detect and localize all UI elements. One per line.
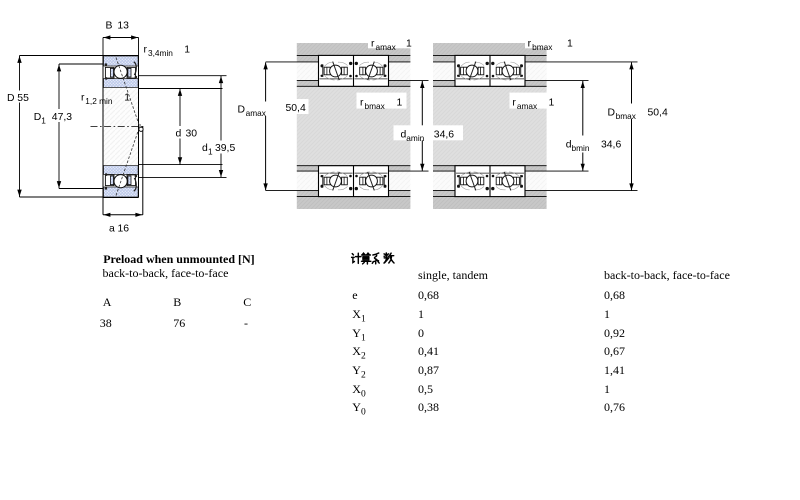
svg-text:1: 1 [567, 38, 573, 49]
svg-text:50,4: 50,4 [648, 108, 668, 119]
svg-text:amax: amax [376, 42, 397, 52]
svg-text:55: 55 [17, 93, 29, 104]
svg-text:1: 1 [124, 93, 130, 104]
svg-text:D: D [238, 104, 246, 115]
svg-text:47,3: 47,3 [52, 112, 72, 123]
svg-text:D: D [7, 93, 15, 104]
svg-text:34,6: 34,6 [601, 139, 621, 150]
svg-text:1: 1 [208, 146, 213, 156]
svg-text:r: r [144, 45, 148, 56]
svg-text:39,5: 39,5 [215, 143, 235, 154]
svg-text:1: 1 [184, 45, 190, 56]
svg-text:1: 1 [41, 115, 46, 125]
svg-text:amax: amax [517, 101, 538, 111]
svg-text:bmin: bmin [572, 143, 590, 153]
svg-text:bmax: bmax [365, 101, 386, 111]
svg-text:r: r [528, 38, 532, 49]
svg-text:1,2 min: 1,2 min [85, 96, 113, 106]
svg-text:r: r [371, 38, 375, 49]
svg-text:bmax: bmax [532, 42, 553, 52]
svg-text:D: D [34, 112, 42, 123]
svg-text:16: 16 [118, 224, 130, 235]
svg-text:D: D [608, 108, 616, 119]
svg-text:30: 30 [186, 129, 198, 140]
svg-text:a: a [109, 224, 115, 235]
svg-text:bmax: bmax [616, 111, 637, 121]
svg-text:r: r [512, 98, 516, 109]
svg-text:1: 1 [406, 38, 412, 49]
svg-text:3,4min: 3,4min [148, 48, 173, 58]
svg-text:B: B [106, 21, 113, 32]
svg-text:d: d [176, 129, 182, 140]
svg-text:13: 13 [117, 21, 129, 32]
svg-text:amax: amax [246, 108, 267, 118]
svg-text:1: 1 [549, 98, 555, 109]
svg-text:34,6: 34,6 [434, 130, 454, 141]
svg-text:50,4: 50,4 [286, 103, 306, 114]
svg-text:r: r [360, 98, 364, 109]
svg-text:amin: amin [406, 133, 424, 143]
svg-text:1: 1 [397, 98, 403, 109]
